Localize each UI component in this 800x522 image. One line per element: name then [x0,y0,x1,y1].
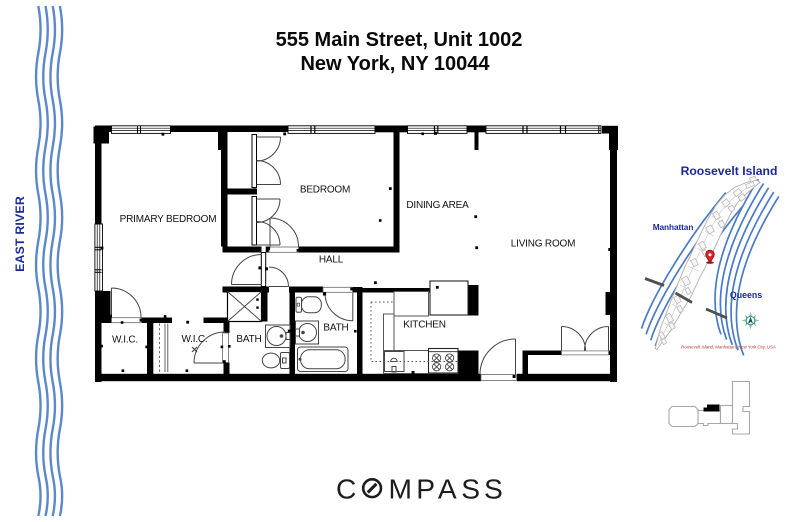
svg-text:HALL: HALL [319,255,344,266]
svg-text:Roosevelt Island: Roosevelt Island [681,164,778,178]
svg-text:555 Main Street, Unit 1002: 555 Main Street, Unit 1002 [276,29,523,51]
svg-text:W.I.C.: W.I.C. [181,334,207,345]
svg-text:C: C [336,473,356,505]
svg-text:Manhattan: Manhattan [653,222,694,232]
svg-text:New York, NY 10044: New York, NY 10044 [300,53,490,75]
svg-text:PRIMARY BEDROOM: PRIMARY BEDROOM [120,214,217,225]
svg-text:A: A [438,473,457,505]
svg-text:M: M [389,473,412,505]
svg-text:Roosevelt Island, Manhattan, N: Roosevelt Island, Manhattan, New York Ci… [681,345,776,350]
svg-text:KITCHEN: KITCHEN [403,320,446,331]
svg-text:LIVING ROOM: LIVING ROOM [511,239,575,250]
svg-text:DINING AREA: DINING AREA [406,200,469,211]
svg-text:EAST RIVER: EAST RIVER [13,196,27,272]
svg-text:BATH: BATH [236,334,261,345]
svg-text:BEDROOM: BEDROOM [300,185,350,196]
svg-text:S: S [484,473,503,505]
svg-text:P: P [416,473,435,505]
svg-text:W.I.C.: W.I.C. [112,335,138,346]
svg-text:S: S [461,473,480,505]
svg-text:Queens: Queens [730,290,762,300]
svg-text:BATH: BATH [323,323,348,334]
